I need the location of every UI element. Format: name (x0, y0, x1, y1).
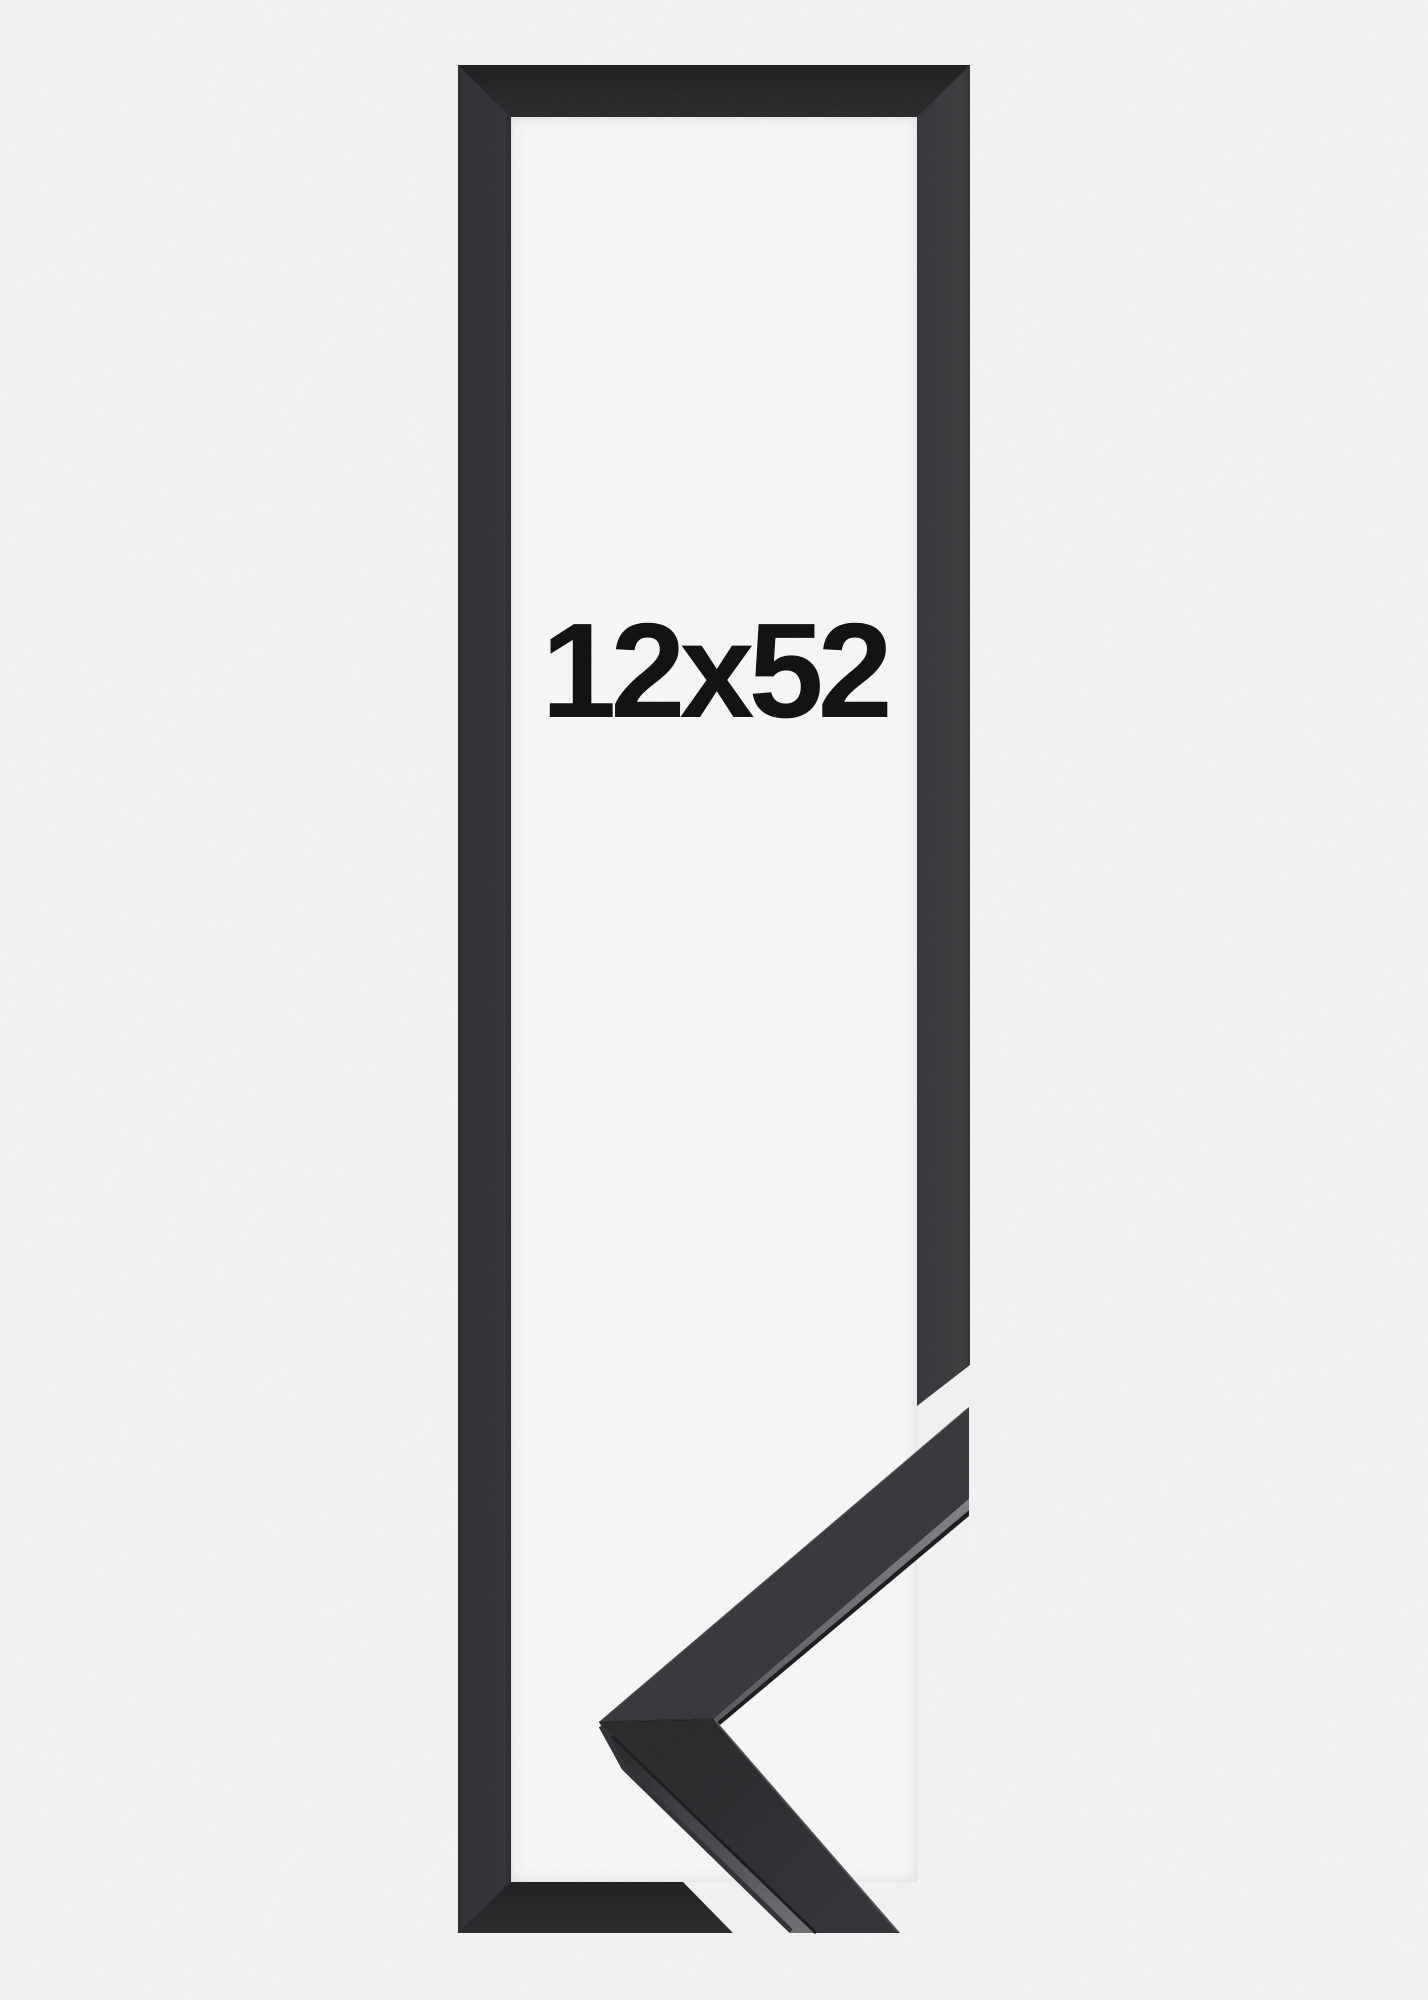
frame-graphic (0, 0, 1428, 2000)
product-image: 12x52 (0, 0, 1428, 2000)
photo-grain-overlay (0, 0, 1428, 2000)
size-label: 12x52 (0, 603, 1428, 738)
